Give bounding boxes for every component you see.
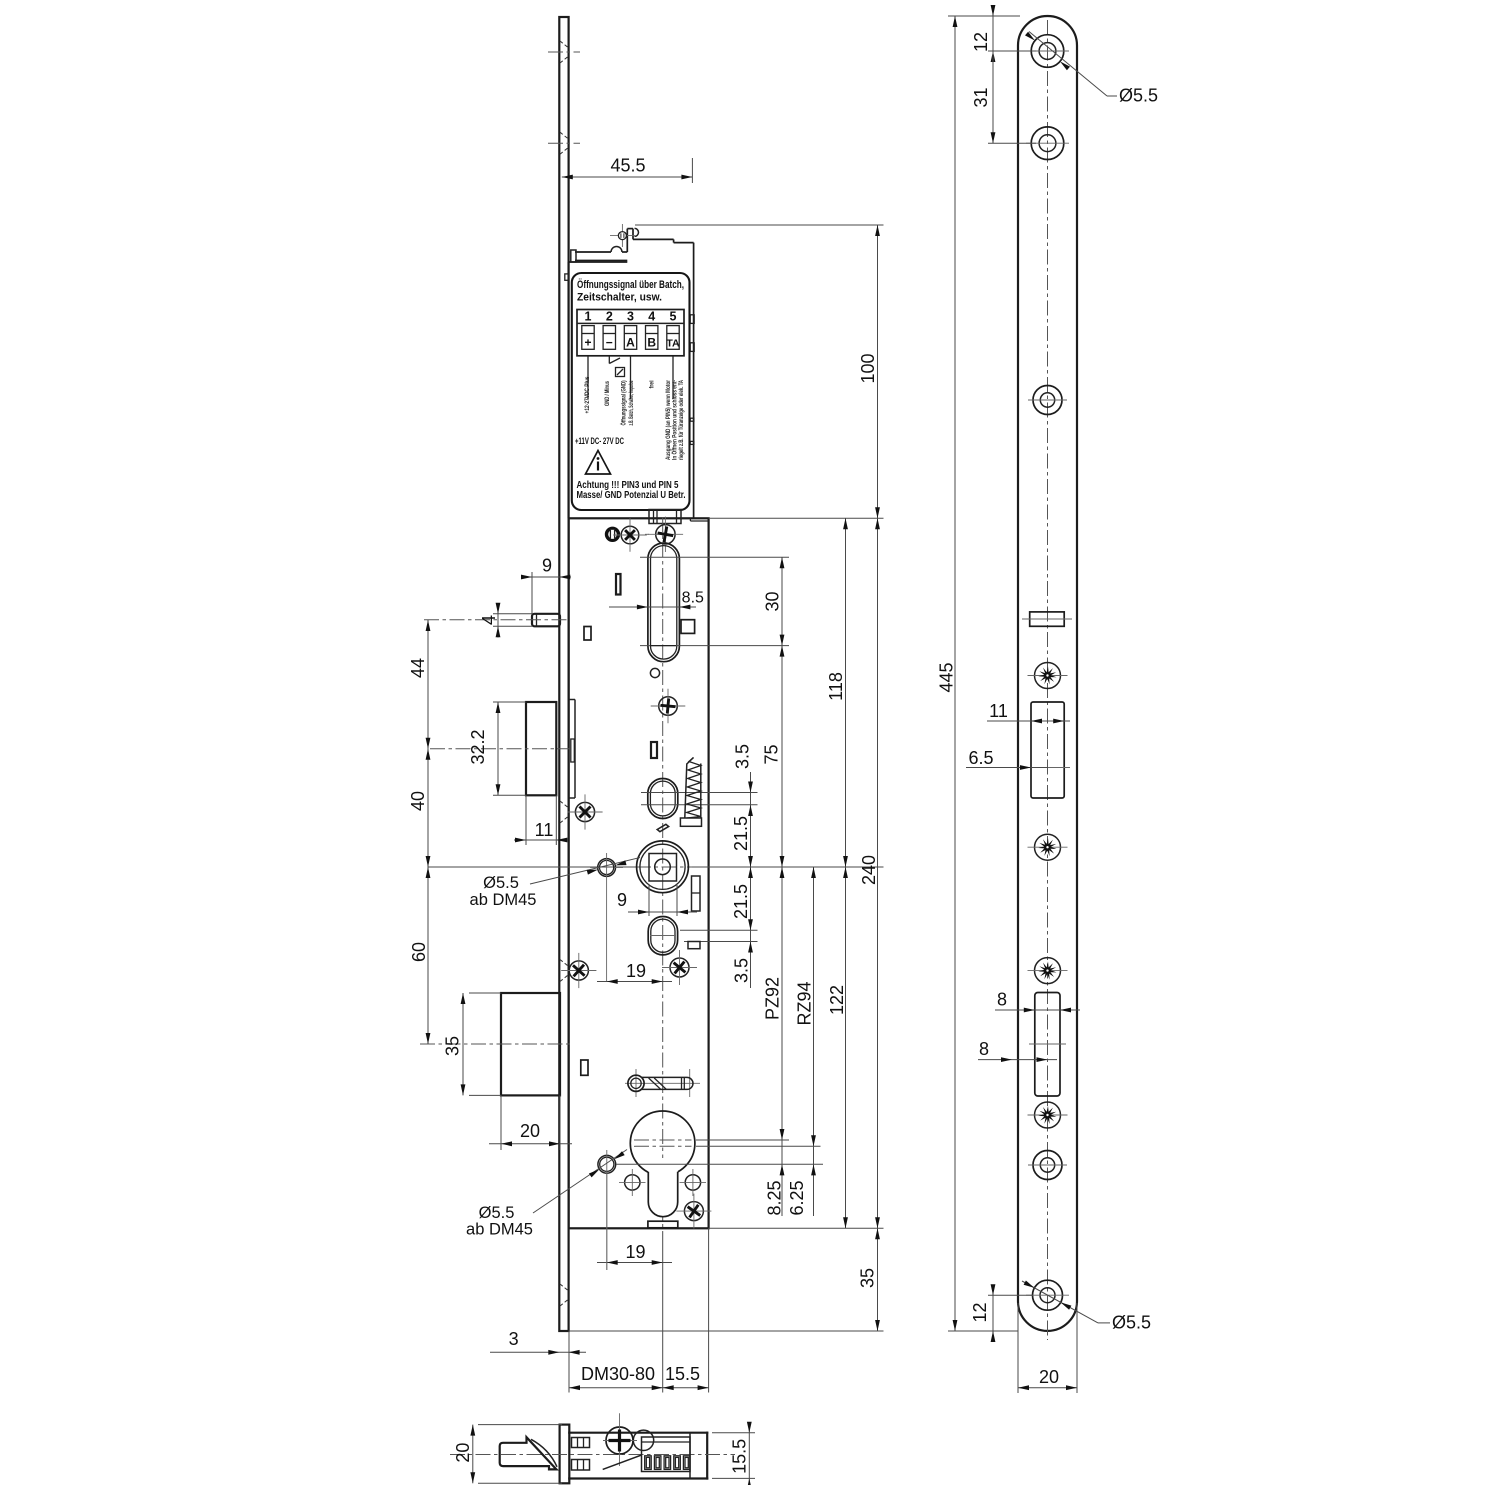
svg-text:Masse/ GND Potenzial U Betr.: Masse/ GND Potenzial U Betr. [577,490,686,501]
svg-text:20: 20 [1039,1367,1059,1387]
svg-text:45.5: 45.5 [610,156,645,176]
svg-text:21.5: 21.5 [731,884,751,919]
svg-text:44: 44 [408,658,428,678]
svg-text:6.5: 6.5 [968,748,993,768]
svg-text:3.5: 3.5 [732,958,752,983]
svg-text:−: − [606,336,613,350]
svg-text:60: 60 [409,942,429,962]
svg-text:2: 2 [606,310,613,324]
svg-text:15.5: 15.5 [665,1364,700,1384]
svg-text:+12-27VDC Plus: +12-27VDC Plus [584,376,591,413]
svg-text:19: 19 [626,961,646,981]
svg-text:35: 35 [858,1268,878,1288]
svg-text:ab DM45: ab DM45 [470,891,537,909]
svg-text:frei: frei [649,380,656,388]
svg-text:11: 11 [989,701,1008,721]
svg-text:+11V DC- 27V DC: +11V DC- 27V DC [575,436,624,447]
svg-text:riegelt z.B. für Türanzeige od: riegelt z.B. für Türanzeige oder elek. T… [678,380,685,460]
svg-text:Zeitschalter, usw.: Zeitschalter, usw. [577,292,662,304]
svg-text:8.25: 8.25 [765,1180,785,1215]
svg-text:8: 8 [997,990,1007,1010]
svg-text:+: + [584,336,591,350]
svg-text:Öffnungssignal über Batch,: Öffnungssignal über Batch, [577,278,684,291]
svg-text:12: 12 [971,32,991,52]
svg-text:4: 4 [648,310,655,324]
svg-text:RZ94: RZ94 [795,981,815,1025]
svg-text:9: 9 [542,556,552,576]
svg-text:32.2: 32.2 [468,729,488,764]
svg-text:9: 9 [617,890,627,910]
svg-text:240: 240 [859,855,879,885]
svg-text:12: 12 [970,1302,990,1322]
svg-text:15.5: 15.5 [730,1439,750,1474]
svg-text:40: 40 [408,791,428,811]
svg-text:ab DM45: ab DM45 [466,1221,533,1239]
svg-text:3.5: 3.5 [733,744,753,769]
svg-text:z.B. Batch, Schalter, Impulse: z.B. Batch, Schalter, Impulse [628,380,635,425]
svg-text:118: 118 [826,672,846,701]
svg-text:Öffnungssignal (GND): Öffnungssignal (GND) [621,381,628,426]
svg-text:4: 4 [479,615,499,625]
svg-text:3: 3 [627,310,634,324]
svg-text:Ø5.5: Ø5.5 [479,1204,515,1222]
svg-text:TA: TA [666,338,680,350]
svg-text:21.5: 21.5 [731,816,751,851]
svg-text:GND / Minus: GND / Minus [604,381,611,406]
svg-text:B: B [647,336,656,350]
svg-text:445: 445 [937,662,957,692]
svg-text:8.5: 8.5 [682,590,704,607]
svg-text:30: 30 [763,591,783,611]
svg-text:DM30-80: DM30-80 [581,1364,655,1384]
svg-text:6.25: 6.25 [787,1180,807,1215]
svg-text:31: 31 [971,87,991,107]
svg-text:75: 75 [762,744,782,764]
svg-text:Ø5.5: Ø5.5 [1119,86,1158,106]
svg-text:100: 100 [858,353,878,383]
svg-text:11: 11 [535,820,554,840]
svg-text:5: 5 [670,310,677,324]
svg-text:20: 20 [453,1443,473,1463]
svg-text:Ø5.5: Ø5.5 [1112,1313,1151,1333]
svg-text:122: 122 [827,985,847,1015]
svg-text:PZ92: PZ92 [763,977,783,1020]
svg-text:3: 3 [509,1329,519,1349]
svg-text:35: 35 [443,1036,463,1056]
svg-text:Ø5.5: Ø5.5 [483,874,519,892]
svg-text:20: 20 [520,1121,540,1141]
svg-text:A: A [626,336,635,350]
svg-text:19: 19 [625,1242,645,1262]
svg-text:1: 1 [585,310,592,324]
svg-text:8: 8 [979,1039,989,1059]
